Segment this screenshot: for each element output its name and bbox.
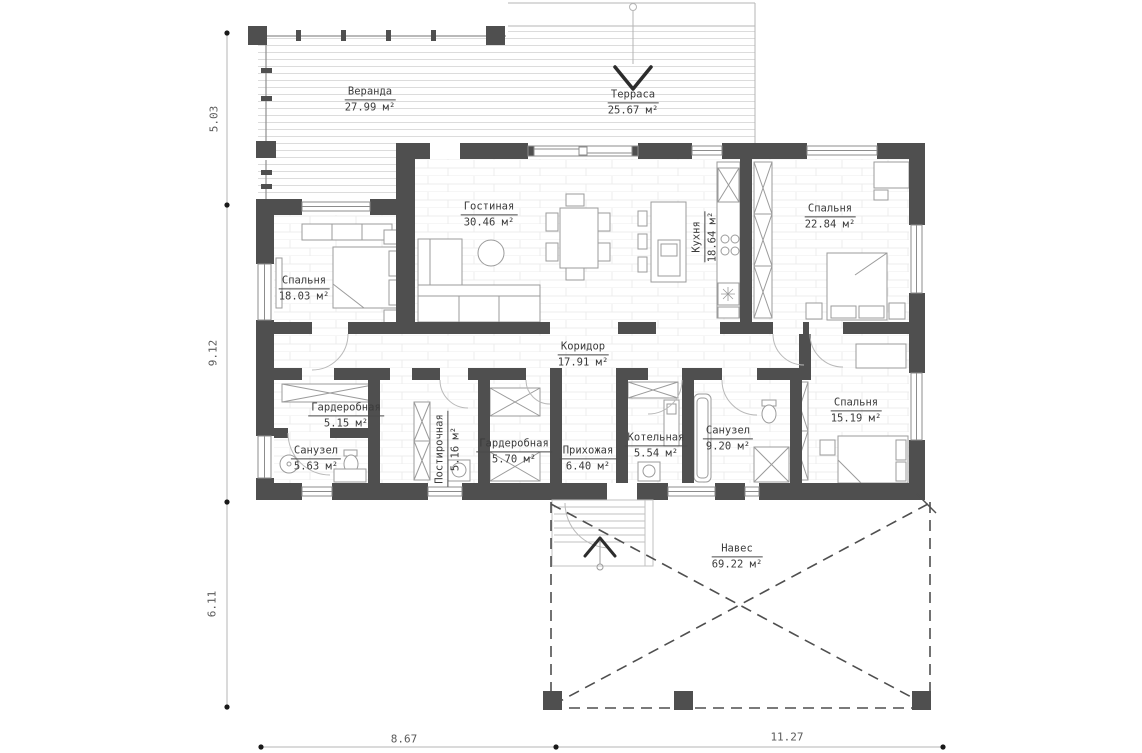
room-label-hallway: Прихожая 6.40 м² [560, 444, 617, 473]
room-label-terrace: Терраса 25.67 м² [608, 88, 659, 117]
room-label-bath2: Санузел 9.20 м² [703, 424, 753, 453]
room-label-corridor: Коридор 17.91 м² [558, 340, 609, 369]
room-label-veranda: Веранда 27.99 м² [345, 85, 396, 114]
room-name: Навес [712, 542, 763, 557]
room-label-canopy: Навес 69.22 м² [712, 542, 763, 571]
room-label-boiler: Котельная 5.54 м² [625, 431, 688, 460]
dimension-left-3: 6.11 [206, 591, 219, 618]
room-name: Прихожая [560, 444, 617, 459]
window-bedroom1-top [302, 202, 370, 211]
room-label-living: Гостиная 30.46 м² [461, 200, 518, 229]
window-right-2 [911, 373, 922, 440]
floor-plan-page: Веранда 27.99 м² Терраса 25.67 м² Гостин… [0, 0, 1142, 753]
room-name: Санузел [703, 424, 753, 439]
canopy-corner-tick [917, 494, 936, 513]
floor-plan-drawing [0, 0, 1142, 753]
room-label-bedroom3: Спальня 15.19 м² [831, 396, 882, 425]
room-area: 6.40 м² [560, 460, 617, 474]
room-name: Терраса [608, 88, 659, 103]
room-name: Спальня [831, 396, 882, 411]
coffee-table [478, 240, 504, 266]
window-bottom-1 [302, 487, 332, 496]
kitchen-counter [717, 162, 740, 318]
window-bottom-4 [745, 487, 759, 496]
room-area: 5.16 м² [449, 411, 463, 487]
window-bottom-2 [428, 487, 462, 496]
room-name: Кухня [690, 212, 705, 263]
room-label-kitchen: Кухня 18.64 м² [690, 212, 719, 263]
room-label-bedroom2: Спальня 22.84 м² [805, 202, 856, 231]
canopy-outline [551, 502, 930, 708]
dimension-left-1: 5.03 [208, 106, 221, 133]
kitchen-island [638, 202, 686, 282]
window-kitchen [692, 146, 722, 155]
canopy-posts [543, 691, 931, 710]
window-right-1 [911, 225, 922, 293]
room-area: 25.67 м² [608, 104, 659, 118]
room-area: 5.63 м² [291, 460, 341, 474]
room-area: 18.03 м² [279, 290, 330, 304]
room-label-bath1: Санузел 5.63 м² [291, 444, 341, 473]
room-area: 69.22 м² [712, 558, 763, 572]
room-name: Гардеробная [476, 437, 552, 452]
dimension-bottom-2: 11.27 [770, 731, 803, 744]
room-name: Спальня [805, 202, 856, 217]
room-name: Гардеробная [308, 401, 384, 416]
room-name: Котельная [625, 431, 688, 446]
room-area: 30.46 м² [461, 216, 518, 230]
room-area: 17.91 м² [558, 356, 609, 370]
room-area: 9.20 м² [703, 440, 753, 454]
window-sliding-door [528, 146, 638, 156]
window-left-1 [258, 264, 271, 320]
wardrobe1-closet [282, 384, 378, 402]
entry-porch [552, 500, 653, 570]
room-name: Санузел [291, 444, 341, 459]
room-label-wardrobe1: Гардеробная 5.15 м² [308, 401, 384, 430]
dimension-bottom-1: 8.67 [391, 733, 418, 746]
room-name: Коридор [558, 340, 609, 355]
room-name: Спальня [279, 274, 330, 289]
room-area: 15.19 м² [831, 412, 882, 426]
window-bottom-3 [668, 487, 715, 496]
room-area: 5.15 м² [308, 417, 384, 431]
room-label-bedroom1: Спальня 18.03 м² [279, 274, 330, 303]
room-area: 5.54 м² [625, 447, 688, 461]
dimension-left-2: 9.12 [207, 340, 220, 367]
window-left-2 [258, 436, 271, 478]
room-area: 27.99 м² [345, 101, 396, 115]
window-bedroom2-top [807, 146, 877, 155]
room-label-laundry: Постирочная 5.16 м² [433, 411, 462, 487]
room-area: 18.64 м² [706, 212, 720, 263]
room-area: 22.84 м² [805, 218, 856, 232]
room-area: 5.70 м² [476, 453, 552, 467]
room-name: Постирочная [433, 411, 448, 487]
room-name: Гостиная [461, 200, 518, 215]
room-label-wardrobe2: Гардеробная 5.70 м² [476, 437, 552, 466]
room-name: Веранда [345, 85, 396, 100]
